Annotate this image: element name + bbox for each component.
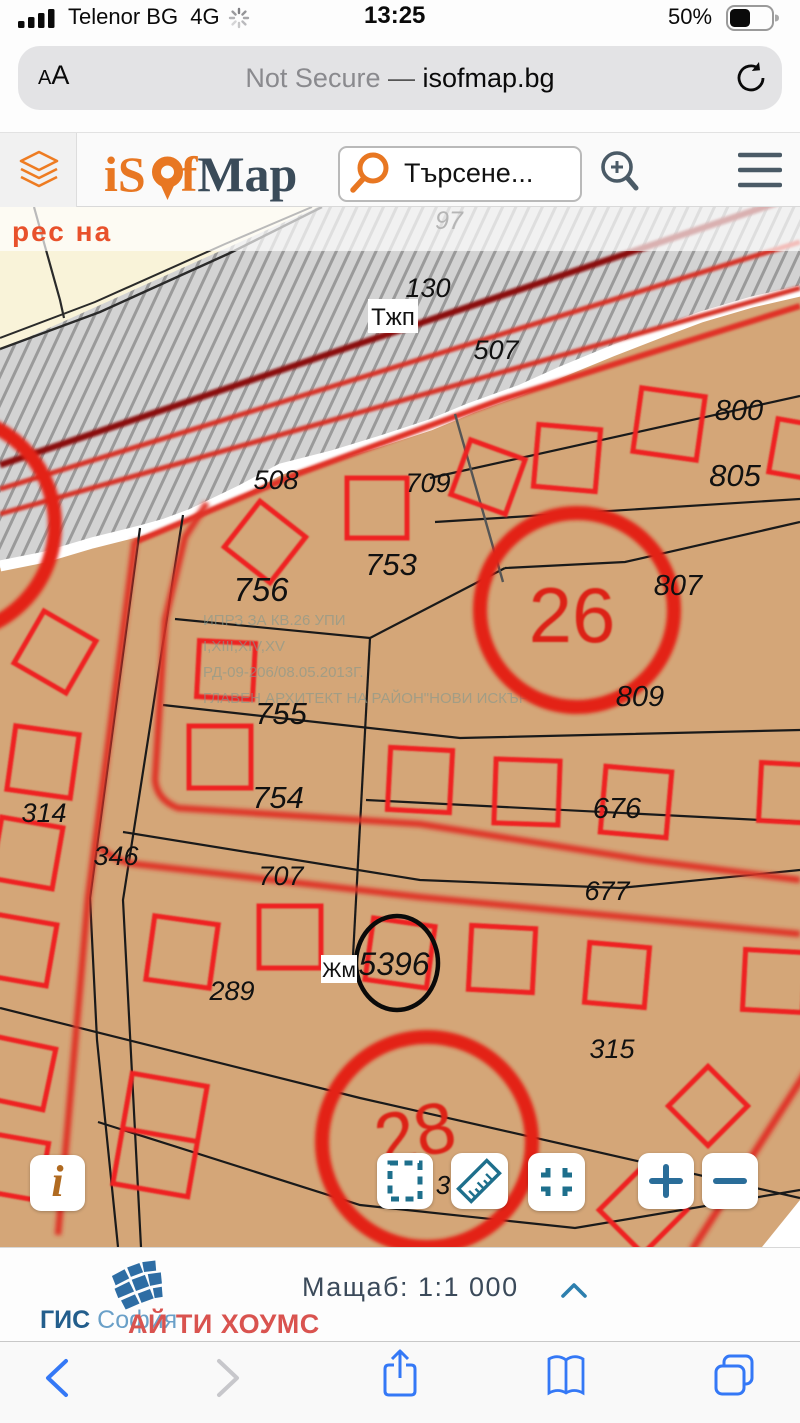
- svg-text:3: 3: [436, 1170, 451, 1200]
- svg-text:800: 800: [715, 395, 763, 427]
- svg-text:755: 755: [255, 696, 307, 731]
- svg-text:807: 807: [654, 570, 704, 602]
- svg-text:753: 753: [365, 547, 417, 582]
- svg-text:507: 507: [473, 335, 519, 365]
- svg-text:рес на: рес на: [12, 216, 112, 247]
- svg-text:Тжп: Тжп: [371, 304, 415, 331]
- svg-text:346: 346: [93, 841, 139, 871]
- svg-text:5396: 5396: [358, 946, 429, 982]
- svg-text:709: 709: [405, 468, 450, 498]
- svg-text:РД-09-206/08.05.2013Г.: РД-09-206/08.05.2013Г.: [203, 664, 364, 681]
- svg-text:508: 508: [253, 465, 298, 495]
- svg-text:130: 130: [405, 273, 450, 303]
- svg-text:809: 809: [616, 681, 664, 713]
- svg-text:26: 26: [529, 571, 616, 659]
- svg-text:289: 289: [208, 976, 254, 1006]
- svg-text:707: 707: [258, 861, 304, 891]
- svg-text:754: 754: [252, 780, 304, 815]
- svg-text:Жм: Жм: [322, 959, 356, 982]
- svg-text:315: 315: [589, 1034, 635, 1064]
- svg-text:І,ХІІІ,ХІV,ХV: І,ХІІІ,ХІV,ХV: [203, 638, 285, 655]
- svg-text:805: 805: [709, 458, 761, 493]
- svg-text:756: 756: [233, 571, 289, 608]
- svg-text:677: 677: [584, 876, 630, 906]
- svg-text:676: 676: [593, 793, 642, 825]
- svg-text:314: 314: [21, 798, 66, 828]
- svg-text:ИПРЗ ЗА КВ.26 УПИ: ИПРЗ ЗА КВ.26 УПИ: [203, 612, 346, 629]
- svg-text:97: 97: [435, 207, 464, 235]
- svg-text:ГЛАВЕН АРХИТЕКТ НА РАЙОН"НОВИ: ГЛАВЕН АРХИТЕКТ НА РАЙОН"НОВИ ИСКЪР": [203, 689, 534, 707]
